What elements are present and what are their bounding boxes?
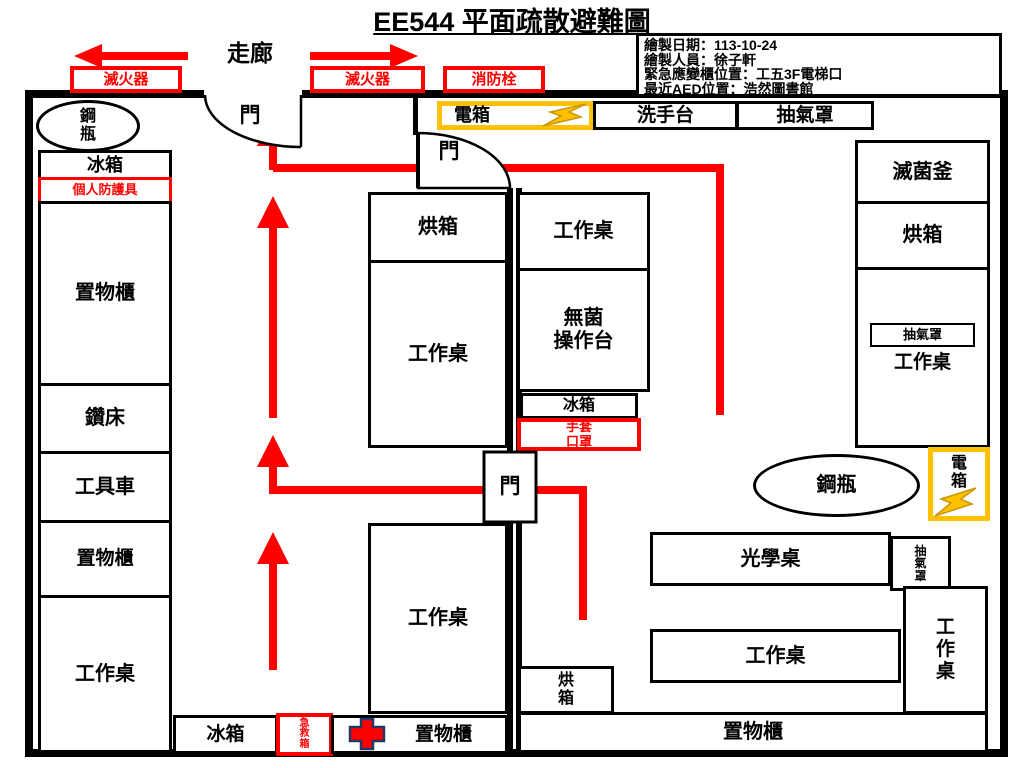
fume-hood-small-right: 抽氣罩: [870, 323, 975, 347]
gas-cylinder-right: 鋼瓶: [753, 454, 920, 517]
tool-cart: 工具車: [38, 451, 172, 523]
extinguisher-left: 滅火器: [70, 66, 182, 93]
worktable-right-label: 工作桌: [858, 350, 987, 376]
ppe-box: 個人防護具: [38, 177, 172, 204]
fridge-top-left: 冰箱: [38, 150, 172, 180]
gloves-masks-box: 手套 口罩: [517, 418, 641, 451]
corridor-arrow-right: [310, 44, 418, 68]
oven-mid: 烘箱: [368, 192, 508, 263]
cabinet-bottom: 置物櫃: [331, 715, 508, 754]
gas-cylinder-left: 鋼 瓶: [36, 100, 140, 152]
fume-hood-top: 抽氣罩: [736, 101, 874, 130]
fume-hood-small-bottom: 抽 氣 罩: [890, 536, 951, 591]
info-aed: 最近AED位置：浩然圖書館: [644, 82, 994, 97]
corridor-arrow-left: [74, 44, 188, 68]
sterile-bench: 無菌 操作台: [517, 268, 650, 392]
electrical-panel-top: 電箱: [437, 101, 594, 130]
extinguisher-mid: 滅火器: [310, 66, 425, 93]
worktable-mid: 工作桌: [368, 260, 508, 448]
cabinet-1: 置物櫃: [38, 201, 172, 386]
wall-right: [1000, 90, 1008, 757]
wall-door-jamb: [413, 96, 418, 135]
evacuation-map: EE544 平面疏散避難圖 繪製日期：113-10-24 繪製人員：徐子軒 緊急…: [0, 0, 1024, 768]
oven-small: 烘 箱: [518, 666, 614, 714]
worktable-right-section: 抽氣罩 工作桌: [855, 267, 990, 448]
worktable-ne: 工作桌: [517, 192, 650, 271]
info-cabinet: 緊急應變櫃位置：工五3F電梯口: [644, 67, 994, 82]
drill-press: 鑽床: [38, 383, 172, 454]
route-arrow-long: [257, 196, 289, 418]
route-arrow-bottom: [257, 532, 289, 670]
cabinet-wide: 置物櫃: [518, 712, 988, 753]
fridge-bottom: 冰箱: [173, 715, 278, 754]
worktable-south: 工作桌: [650, 629, 901, 683]
worktable-bottom: 工作桌: [368, 523, 508, 714]
oven-right: 烘箱: [855, 201, 990, 270]
sink: 洗手台: [593, 101, 738, 130]
fridge-small: 冰箱: [520, 393, 638, 419]
door-2-label: 門: [424, 136, 474, 168]
cabinet-2: 置物櫃: [38, 520, 172, 598]
first-aid-box: 急 救 箱: [276, 713, 333, 756]
info-box: 繪製日期：113-10-24 繪製人員：徐子軒 緊急應變櫃位置：工五3F電梯口 …: [636, 33, 1002, 97]
fire-hydrant: 消防栓: [443, 66, 545, 93]
corridor-label: 走廊: [205, 38, 295, 68]
door-3-label: 門: [487, 470, 533, 504]
optical-table: 光學桌: [650, 532, 891, 586]
worktable-left: 工作桌: [38, 595, 172, 753]
info-author: 繪製人員：徐子軒: [644, 53, 994, 68]
info-date: 繪製日期：113-10-24: [644, 38, 994, 53]
wall-left: [25, 90, 33, 757]
door-1-label: 門: [222, 100, 278, 132]
worktable-vertical: 工 作 桌: [903, 586, 988, 714]
electrical-panel-right: 電 箱: [928, 447, 990, 521]
autoclave: 滅菌釜: [855, 140, 990, 204]
